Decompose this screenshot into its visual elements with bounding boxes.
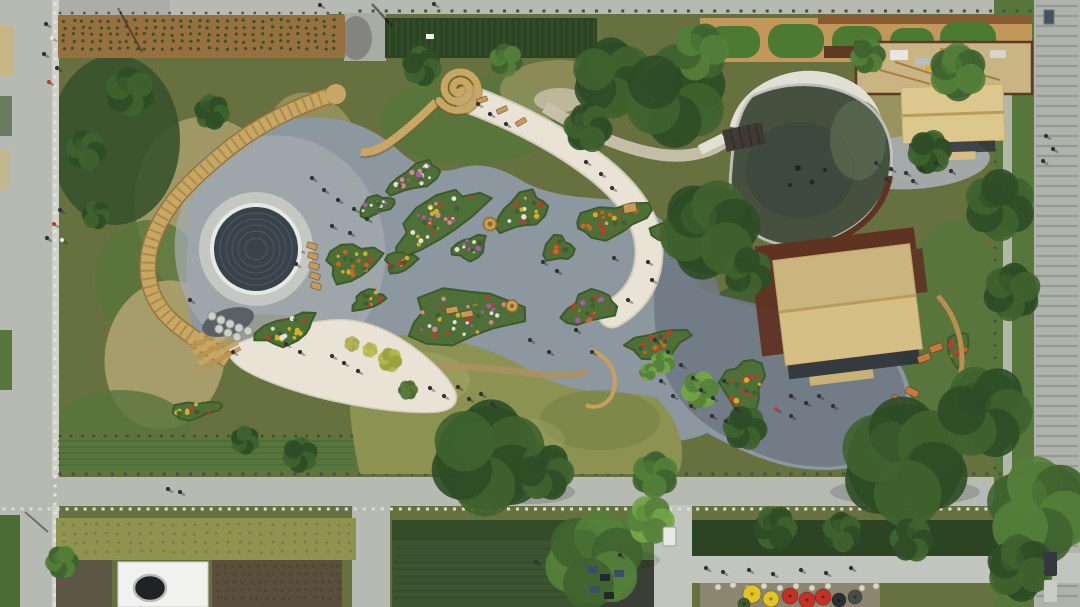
pedestrian-body	[467, 397, 471, 401]
hedge-plant	[100, 26, 103, 29]
fence-post	[822, 508, 825, 511]
fence-post	[529, 10, 532, 13]
hedge-plant	[80, 19, 83, 22]
hedge-plant	[281, 550, 284, 553]
far-left-garden	[0, 150, 10, 190]
yard-material	[990, 50, 1006, 58]
hedge-plant	[348, 541, 351, 544]
umbrella-pole	[821, 595, 824, 598]
fence-post	[588, 508, 591, 511]
market-umbrella	[799, 592, 815, 607]
pedestrian-body	[590, 350, 594, 354]
fence-post	[261, 435, 264, 438]
fence-post	[59, 12, 62, 15]
flower-cluster	[519, 207, 523, 211]
flower-cluster	[575, 318, 580, 323]
pedestrian-body	[789, 394, 793, 398]
pedestrian-body	[666, 350, 670, 354]
fence-post	[54, 203, 57, 206]
foliage-clump	[613, 221, 618, 226]
stall-table	[825, 583, 831, 589]
flower-cluster	[430, 211, 435, 216]
fence-post	[871, 10, 874, 13]
hedge-plant	[217, 564, 220, 567]
foliage-clump	[470, 248, 475, 253]
flower-cluster	[476, 246, 481, 251]
pedestrian-body	[44, 22, 48, 26]
hedge-plant	[145, 26, 148, 29]
hedge-plant	[235, 19, 238, 22]
hedge-plant	[270, 18, 273, 21]
flower-cluster	[416, 172, 421, 177]
hedge-plant	[216, 39, 219, 42]
fence-post	[54, 257, 57, 260]
hedge-plant	[81, 47, 84, 50]
pedestrian-body	[671, 394, 675, 398]
fence-post	[678, 508, 681, 511]
fence-post	[450, 10, 453, 13]
canopy-puff	[205, 111, 224, 130]
hedge-plant	[304, 564, 307, 567]
pedestrian-body	[799, 568, 803, 572]
flower-cluster	[420, 328, 423, 331]
hedge-plant	[84, 522, 87, 525]
flower-cluster	[370, 204, 373, 207]
hedge-plant	[280, 46, 283, 49]
fence-post	[54, 148, 57, 151]
stall-table	[859, 585, 865, 591]
fence-post	[85, 473, 88, 476]
pedestrian-body	[294, 262, 298, 266]
hedge-plant	[63, 27, 66, 30]
pedestrian-body	[50, 36, 54, 40]
hedge-plant	[297, 46, 300, 49]
fence-post	[309, 508, 312, 511]
fence-post	[174, 508, 177, 511]
hedge-plant	[260, 542, 263, 545]
fence-post	[39, 508, 42, 511]
fence-post	[435, 508, 438, 511]
fence-post	[54, 75, 57, 78]
hedge-plant	[314, 588, 317, 591]
hedge-plant	[99, 20, 102, 23]
hedge-plant	[257, 564, 260, 567]
fence-post	[994, 332, 997, 335]
fence-post	[72, 473, 75, 476]
bamboo-spiral-sculpture	[439, 72, 478, 112]
fence-post	[302, 12, 305, 15]
hedge-plant	[162, 19, 165, 22]
fence-post	[307, 473, 310, 476]
hedge-plant	[161, 541, 164, 544]
flower-cluster	[489, 320, 494, 325]
hedge-plant	[95, 540, 98, 543]
foliage-clump	[397, 184, 402, 189]
flower-cluster	[447, 220, 452, 225]
fence-post	[724, 473, 727, 476]
fence-post	[54, 357, 57, 360]
fence-post	[339, 12, 342, 15]
pedestrian-body	[547, 350, 551, 354]
flower-cluster	[351, 264, 355, 268]
fence-post	[54, 93, 57, 96]
hedge-plant	[266, 573, 269, 576]
hedge-plant	[248, 573, 251, 576]
pedestrian-body	[771, 572, 775, 576]
fence-post	[615, 508, 618, 511]
hedge-plant	[152, 33, 155, 36]
fence-post	[842, 473, 845, 476]
pedestrian-body	[310, 176, 314, 180]
canopy-highlight	[899, 526, 915, 542]
hedge-plant	[226, 589, 229, 592]
flower-cluster	[432, 333, 437, 338]
hedge-plant	[81, 39, 84, 42]
fence-post	[687, 10, 690, 13]
canopy-highlight	[365, 345, 371, 351]
hedge-plant	[208, 46, 211, 49]
foliage-clump	[377, 208, 382, 213]
canopy-highlight	[496, 50, 508, 62]
fence-post	[132, 12, 135, 15]
canopy-puff	[563, 558, 614, 607]
hedge-plant	[305, 47, 308, 50]
fence-post	[102, 508, 105, 511]
foliage-clump	[177, 411, 182, 416]
boardwalk-landing	[326, 84, 346, 104]
hedge-plant	[73, 19, 76, 22]
canopy-highlight	[995, 274, 1016, 295]
hedge-plant	[172, 524, 175, 527]
flower-cluster	[572, 303, 577, 308]
fence-post	[437, 10, 440, 13]
hedge-plant	[249, 580, 252, 583]
flower-cluster	[486, 296, 490, 300]
hedge-plant	[98, 47, 101, 50]
fence-post	[246, 508, 249, 511]
hedge-plant	[322, 32, 325, 35]
fence-post	[84, 508, 87, 511]
fence-post	[1029, 10, 1032, 13]
fence-post	[210, 508, 213, 511]
fence-post	[54, 284, 57, 287]
hedge-plant	[107, 27, 110, 30]
fence-post	[534, 508, 537, 511]
hedge-plant	[264, 564, 267, 567]
fence-post	[229, 12, 232, 15]
pedestrian-body	[721, 570, 725, 574]
canopy-highlight	[52, 552, 64, 564]
flower-cluster	[615, 225, 618, 228]
umbrella-pole	[769, 597, 772, 600]
hedge-plant	[189, 32, 192, 35]
market-umbrella	[782, 588, 798, 604]
hedge-plant	[143, 32, 146, 35]
hedge-plant	[128, 532, 131, 535]
foliage-clump	[293, 317, 298, 322]
fence-post	[98, 473, 101, 476]
fence-post	[66, 508, 69, 511]
hedge-plant	[297, 572, 300, 575]
fence-post	[228, 508, 231, 511]
hedge-plant	[193, 533, 196, 536]
hedge-plant	[327, 524, 330, 527]
fence-post	[999, 473, 1002, 476]
flower-cluster	[456, 313, 461, 318]
hedge-plant	[273, 565, 276, 568]
flower-cluster	[470, 324, 473, 327]
canopy-highlight	[643, 366, 649, 372]
stone-stool	[224, 329, 232, 337]
fence-post	[75, 508, 78, 511]
hedge-plant	[172, 39, 175, 42]
hedge-plant	[183, 533, 186, 536]
flower-cluster	[440, 203, 444, 207]
pedestrian-body	[659, 379, 663, 383]
fence-post	[156, 508, 159, 511]
flower-cluster	[336, 262, 341, 267]
fence-post	[165, 508, 168, 511]
fence-post	[171, 435, 174, 438]
flower-cluster	[284, 318, 287, 321]
foliage-clump	[658, 335, 663, 340]
hedge-plant	[320, 572, 323, 575]
hedge-plant	[171, 18, 174, 21]
flower-cluster	[438, 318, 442, 322]
fence-post	[163, 473, 166, 476]
flower-cluster	[590, 313, 594, 317]
pedestrian-body	[356, 369, 360, 373]
hedge-plant	[314, 27, 317, 30]
hedge-plant	[73, 40, 76, 43]
hedge-plant	[116, 33, 119, 36]
hedge-plant	[322, 596, 325, 599]
hedge-plant	[242, 41, 245, 44]
hedge-plant	[233, 572, 236, 575]
umbrella-pole	[837, 598, 840, 601]
pedestrian-body	[318, 3, 322, 7]
pedestrian-body	[479, 392, 483, 396]
flower-cluster	[428, 324, 432, 328]
foliage-clump	[349, 258, 354, 263]
hedge-plant	[322, 580, 325, 583]
hedge-plant	[262, 41, 265, 44]
flower-cluster	[432, 231, 435, 234]
hedge-plant	[240, 588, 243, 591]
hedge-plant	[172, 551, 175, 554]
foliage-clump	[363, 301, 368, 306]
flower-cluster	[472, 240, 476, 244]
fence-post	[21, 508, 24, 511]
hedge-plant	[271, 551, 274, 554]
fence-post	[54, 103, 57, 106]
canopy-highlight	[88, 206, 98, 216]
hedge-plant	[72, 27, 75, 30]
fence-post	[254, 473, 257, 476]
hedge-plant	[62, 39, 65, 42]
fence-post	[687, 508, 690, 511]
hedge-plant	[315, 541, 318, 544]
hedge-plant	[133, 18, 136, 21]
pedestrian-body	[330, 354, 334, 358]
hedge-plant	[338, 597, 341, 600]
hedge-plant	[182, 542, 185, 545]
flower-cluster	[730, 378, 733, 381]
hedge-plant	[173, 532, 176, 535]
fence-post	[147, 508, 150, 511]
fence-post	[595, 10, 598, 13]
flower-cluster	[758, 383, 761, 386]
hedge-plant	[126, 46, 129, 49]
fence-post	[792, 10, 795, 13]
hedge-plant	[241, 581, 244, 584]
hedge-plant	[228, 531, 231, 534]
fence-post	[561, 508, 564, 511]
hedge-plant	[72, 32, 75, 35]
hedge-plant	[314, 596, 317, 599]
hedge-plant	[314, 40, 317, 43]
stall-table	[777, 585, 783, 591]
hedge-plant	[319, 588, 322, 591]
hedge-plant	[303, 596, 306, 599]
hedge-plant	[196, 39, 199, 42]
pedestrian-body	[188, 298, 192, 302]
hedge-plant	[234, 47, 237, 50]
hedge-plant	[305, 572, 308, 575]
hedge-plant	[139, 532, 142, 535]
fence-post	[54, 366, 57, 369]
fence-post	[966, 508, 969, 511]
fence-post	[711, 473, 714, 476]
fence-post	[93, 508, 96, 511]
hedge-plant	[327, 532, 330, 535]
fence-post	[291, 508, 294, 511]
hedge-plant	[336, 572, 339, 575]
flower-cluster	[426, 235, 430, 239]
hedge-plant	[325, 40, 328, 43]
flower-cluster	[302, 318, 306, 322]
stone-stool	[235, 324, 243, 332]
flower-cluster	[486, 303, 491, 308]
canopy-highlight	[383, 352, 392, 361]
hedge-plant	[281, 572, 284, 575]
flower-cluster	[343, 250, 348, 255]
pedestrian-body	[476, 102, 480, 106]
hedge-plant	[271, 40, 274, 43]
hedge-plant	[258, 580, 261, 583]
fence-post	[994, 344, 997, 347]
hedge-plant	[182, 551, 185, 554]
hedge-plant	[234, 40, 237, 43]
hedge-plant	[117, 550, 120, 553]
hedge-plant	[252, 20, 255, 23]
fence-post	[327, 508, 330, 511]
hedge-plant	[107, 540, 110, 543]
fence-post	[228, 473, 231, 476]
hedge-plant	[297, 41, 300, 44]
pond-rock	[823, 168, 827, 172]
hedge-plant	[261, 32, 264, 35]
flower-cluster	[556, 251, 559, 254]
hedge-plant	[117, 541, 120, 544]
flower-cluster	[378, 298, 382, 302]
pedestrian-body	[934, 161, 938, 165]
hedge-plant	[224, 34, 227, 37]
hedge-plant	[305, 522, 308, 525]
hedge-plant	[179, 19, 182, 22]
hedge-plant	[83, 541, 86, 544]
pedestrian-body	[724, 419, 728, 423]
fence-post	[254, 12, 256, 15]
canopy-highlight	[858, 45, 871, 58]
hedge-plant	[348, 523, 351, 526]
hedge-plant	[330, 565, 333, 568]
hedge-plant	[231, 589, 234, 592]
foliage-clump	[277, 331, 282, 336]
umbrella-pole	[750, 592, 753, 595]
pedestrian-body	[1041, 159, 1045, 163]
fence-post	[95, 12, 98, 15]
fence-post	[766, 10, 769, 13]
fence-post	[54, 3, 57, 6]
fence-post	[994, 246, 997, 249]
pedestrian-body	[342, 361, 346, 365]
hedge-plant	[286, 40, 289, 43]
foliage-clump	[590, 297, 595, 302]
fence-post	[59, 435, 62, 438]
hedge-plant	[333, 25, 336, 28]
stall-table	[730, 582, 736, 588]
flower-cluster	[581, 223, 586, 228]
hedge-plant	[154, 26, 157, 29]
fence-post	[54, 493, 57, 496]
pedestrian-body	[653, 338, 657, 342]
fence-post	[417, 508, 420, 511]
foliage-clump	[735, 383, 740, 388]
hedge-plant	[255, 597, 258, 600]
fence-post	[714, 508, 717, 511]
umbrella-pole	[788, 594, 791, 597]
canopy-highlight	[641, 460, 658, 477]
flower-cluster	[429, 206, 433, 210]
hedge-plant	[304, 540, 307, 543]
hedge-plant	[307, 39, 310, 42]
flower-cluster	[529, 196, 532, 199]
flower-cluster	[950, 354, 953, 357]
fence-post	[805, 10, 808, 13]
fence-post	[54, 439, 57, 442]
hedge-plant	[333, 18, 336, 21]
flower-cluster	[293, 336, 297, 340]
pedestrian-body	[949, 169, 953, 173]
hedge-plant	[215, 47, 218, 50]
flower-cluster	[618, 217, 621, 220]
pedestrian-body	[710, 414, 714, 418]
hedge-plant	[63, 533, 66, 536]
flower-cluster	[441, 306, 445, 310]
hedge-plant	[162, 33, 165, 36]
hedge-plant	[91, 40, 94, 43]
fence-post	[306, 435, 309, 438]
foliage-clump	[193, 409, 198, 414]
flower-cluster	[271, 327, 275, 331]
hedge-plant	[286, 33, 289, 36]
hedge-plant	[224, 40, 227, 43]
hedge-plant	[188, 25, 191, 28]
pedestrian-body	[679, 363, 683, 367]
foliage-clump	[590, 303, 595, 308]
hedge-plant	[282, 564, 285, 567]
